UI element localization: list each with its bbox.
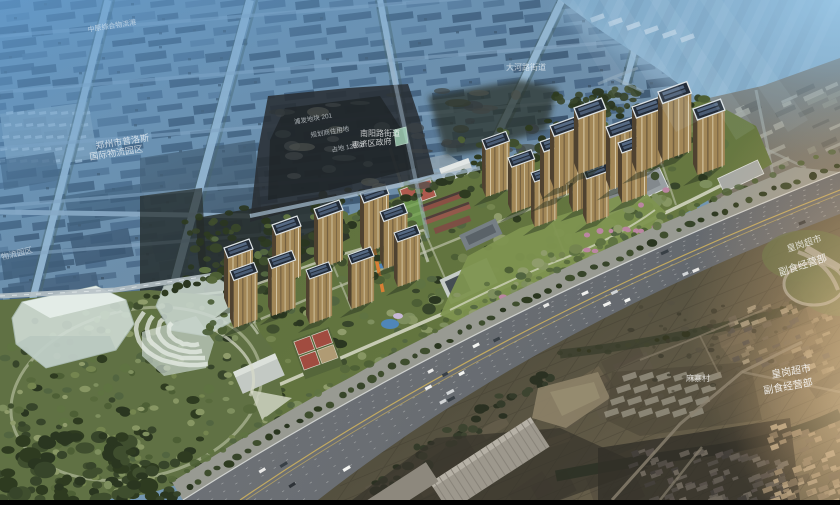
svg-text:大河路街道: 大河路街道 xyxy=(506,62,546,72)
svg-text:麻寨村: 麻寨村 xyxy=(686,373,710,383)
svg-text:南阳路街道: 南阳路街道 xyxy=(360,128,400,138)
